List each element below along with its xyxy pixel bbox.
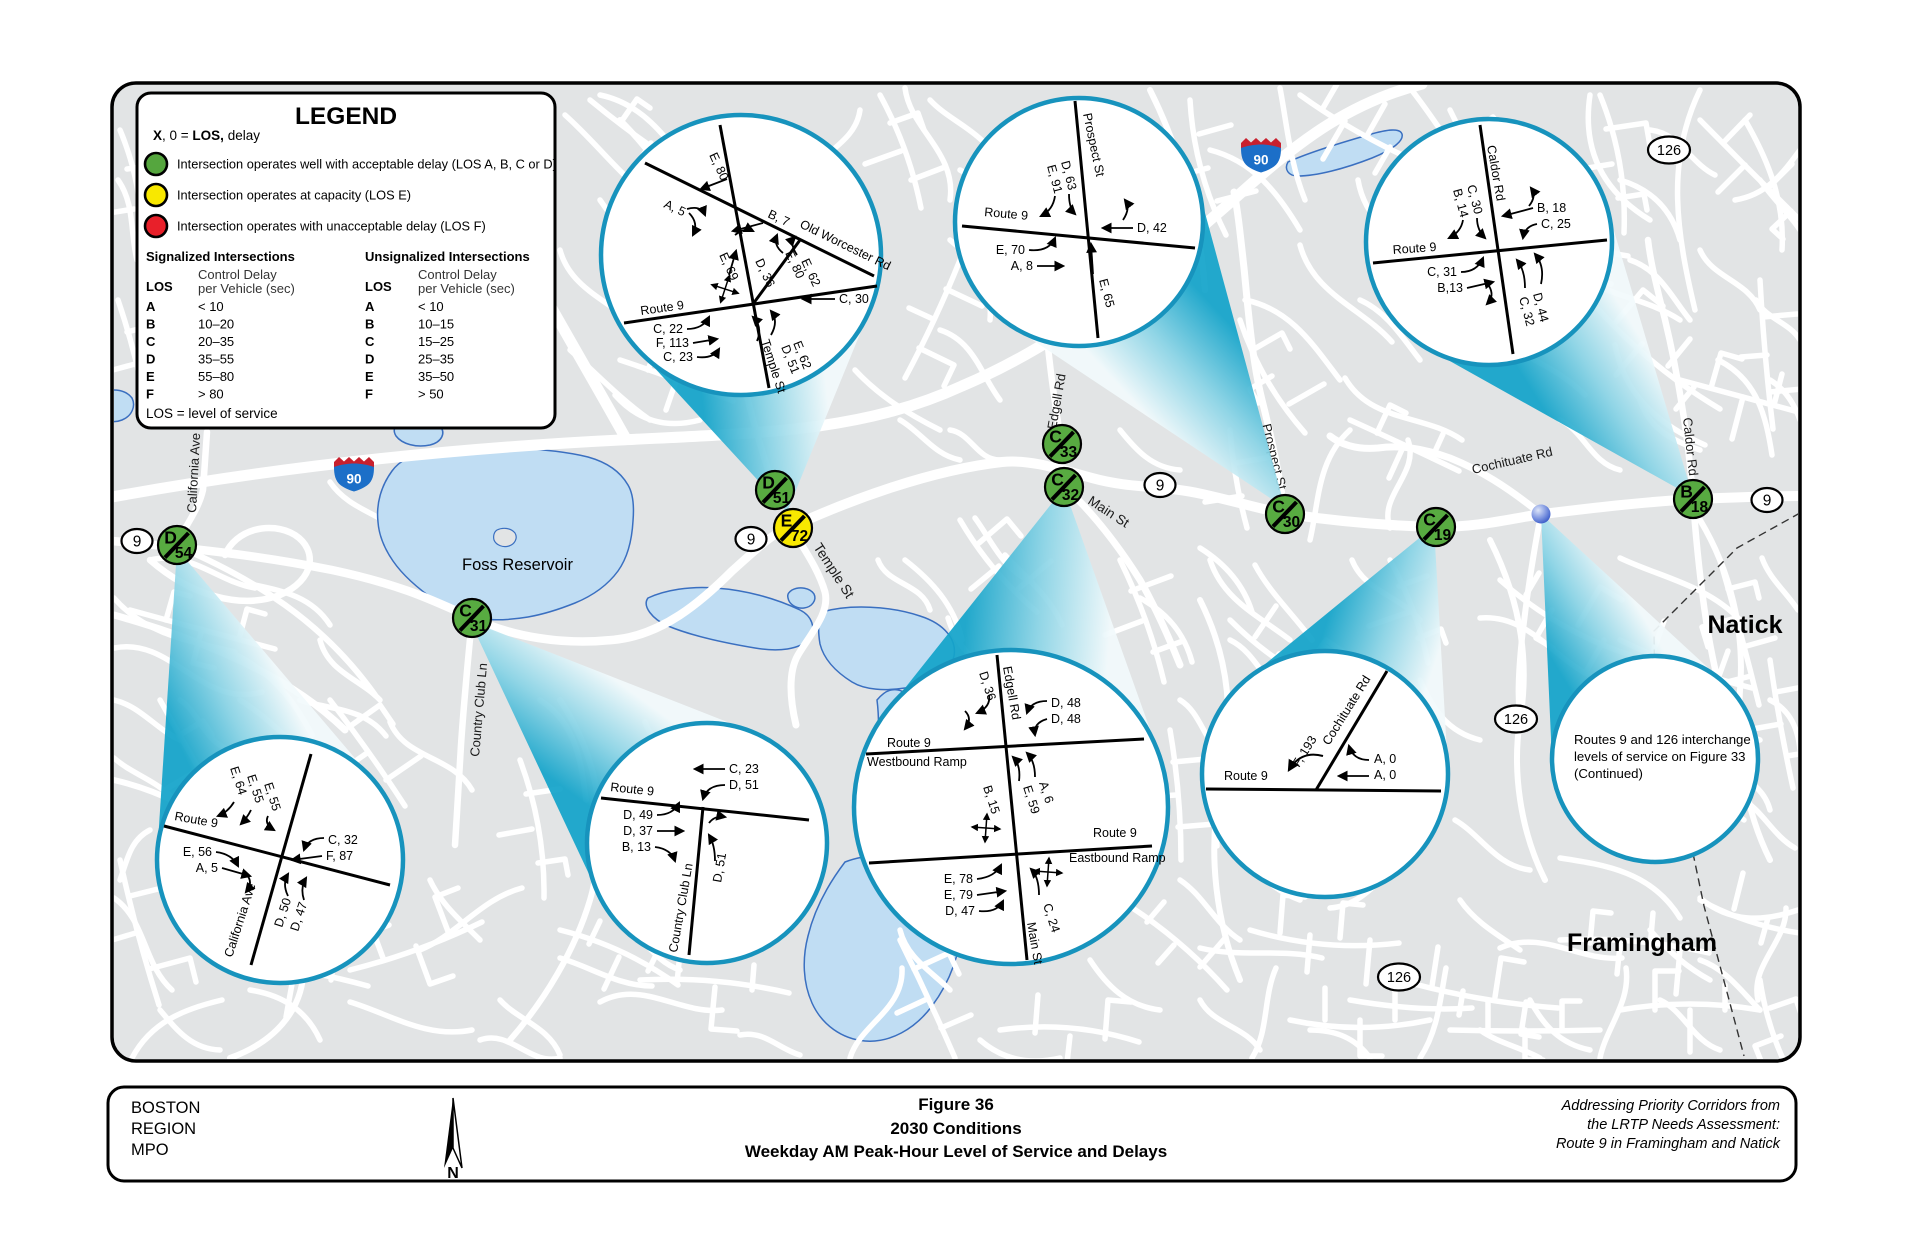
svg-text:10–15: 10–15 [418,317,454,332]
svg-text:E: E [146,369,155,384]
svg-text:D, 51: D, 51 [729,778,759,792]
svg-text:C, 22: C, 22 [653,322,683,336]
svg-text:per Vehicle (sec): per Vehicle (sec) [198,281,295,296]
svg-text:10–20: 10–20 [198,317,234,332]
svg-text:C, 23: C, 23 [729,762,759,776]
svg-text:LOS: LOS [365,279,392,294]
svg-text:F: F [146,387,154,402]
svg-text:C, 32: C, 32 [328,833,358,847]
svg-text:D, 48: D, 48 [1051,696,1081,710]
svg-text:126: 126 [1387,970,1411,986]
svg-text:LOS: LOS [146,279,173,294]
svg-text:33: 33 [1060,444,1078,461]
svg-text:F: F [365,387,373,402]
svg-text:B: B [146,317,155,332]
svg-text:54: 54 [175,545,193,562]
svg-text:Unsignalized Intersections: Unsignalized Intersections [365,249,530,264]
svg-text:BOSTON: BOSTON [131,1099,200,1117]
svg-text:A, 0: A, 0 [1374,768,1396,782]
svg-text:Natick: Natick [1707,611,1782,639]
svg-text:Intersection operates at capac: Intersection operates at capacity (LOS E… [177,188,411,203]
svg-text:20–35: 20–35 [198,334,234,349]
svg-text:D, 48: D, 48 [1051,712,1081,726]
svg-text:C, 31: C, 31 [1427,265,1457,279]
svg-text:per Vehicle (sec): per Vehicle (sec) [418,281,515,296]
svg-text:2030 Conditions: 2030 Conditions [890,1119,1021,1138]
svg-text:Eastbound Ramp: Eastbound Ramp [1069,851,1166,865]
svg-text:B, 13: B, 13 [622,840,651,854]
svg-text:9: 9 [747,532,756,549]
svg-text:C: C [365,334,375,349]
svg-text:Routes 9 and 126 interchange: Routes 9 and 126 interchange [1574,732,1751,747]
svg-text:Figure 36: Figure 36 [918,1095,994,1114]
svg-text:35–55: 35–55 [198,352,234,367]
svg-text:D, 37: D, 37 [623,824,653,838]
svg-text:Framingham: Framingham [1567,929,1717,957]
svg-text:D, 47: D, 47 [945,904,975,918]
svg-text:E: E [365,369,374,384]
svg-text:< 10: < 10 [418,299,444,314]
svg-text:Route 9: Route 9 [887,736,931,750]
svg-text:Addressing Priority Corridors: Addressing Priority Corridors from [1561,1098,1780,1114]
svg-text:A, 0: A, 0 [1374,752,1396,766]
svg-text:Weekday AM Peak-Hour Level of: Weekday AM Peak-Hour Level of Service an… [745,1142,1167,1161]
svg-text:55–80: 55–80 [198,369,234,384]
svg-text:15–25: 15–25 [418,334,454,349]
svg-text:E, 78: E, 78 [944,872,973,886]
svg-text:< 10: < 10 [198,299,224,314]
svg-text:B, 18: B, 18 [1537,201,1566,215]
svg-text:E, 79: E, 79 [944,888,973,902]
svg-text:E, 70: E, 70 [996,243,1025,257]
svg-text:18: 18 [1691,499,1709,516]
svg-text:> 80: > 80 [198,387,224,402]
svg-text:72: 72 [791,528,808,545]
svg-text:51: 51 [773,490,791,507]
svg-text:Control Delay: Control Delay [418,267,497,282]
svg-text:D: D [365,352,374,367]
svg-text:E, 56: E, 56 [183,845,212,859]
svg-text:32: 32 [1062,487,1079,504]
svg-text:A: A [146,299,156,314]
svg-text:> 50: > 50 [418,387,444,402]
svg-text:9: 9 [133,534,142,551]
svg-text:Control Delay: Control Delay [198,267,277,282]
svg-text:Foss Reservoir: Foss Reservoir [462,556,573,574]
svg-text:C, 30: C, 30 [839,292,869,306]
svg-text:C, 23: C, 23 [663,350,693,364]
svg-text:A, 5: A, 5 [196,861,218,875]
svg-text:B,13: B,13 [1437,281,1463,295]
svg-text:MPO: MPO [131,1141,169,1159]
svg-text:the LRTP Needs Assessment:: the LRTP Needs Assessment: [1587,1117,1780,1133]
svg-text:LEGEND: LEGEND [295,103,397,130]
svg-text:D: D [146,352,155,367]
svg-text:F, 87: F, 87 [326,849,353,863]
svg-text:30: 30 [1283,514,1300,531]
svg-text:9: 9 [1763,493,1772,510]
svg-text:C, 25: C, 25 [1541,217,1571,231]
svg-text:Westbound Ramp: Westbound Ramp [867,755,967,769]
svg-text:9: 9 [1156,478,1165,495]
svg-text:19: 19 [1434,527,1452,544]
svg-text:Route 9: Route 9 [1093,826,1137,840]
svg-text:Route 9 in Framingham and Nati: Route 9 in Framingham and Natick [1556,1136,1781,1152]
svg-text:levels of service on Figure 33: levels of service on Figure 33 [1574,749,1746,764]
svg-text:A, 8: A, 8 [1011,259,1033,273]
svg-text:90: 90 [346,472,361,487]
svg-text:Route 9: Route 9 [1224,769,1268,783]
svg-text:REGION: REGION [131,1120,196,1138]
svg-text:F, 113: F, 113 [656,336,689,350]
svg-text:X, 0 = LOS, delay: X, 0 = LOS, delay [153,128,260,143]
svg-text:25–35: 25–35 [418,352,454,367]
svg-text:Intersection operates with una: Intersection operates with unacceptable … [177,219,486,234]
svg-text:C: C [146,334,156,349]
svg-text:126: 126 [1657,143,1681,159]
svg-text:LOS = level of service: LOS = level of service [146,406,278,421]
svg-text:126: 126 [1504,712,1528,728]
svg-text:90: 90 [1253,153,1268,168]
svg-text:N: N [447,1165,459,1182]
svg-text:Intersection operates well wit: Intersection operates well with acceptab… [177,157,557,172]
svg-text:B: B [365,317,374,332]
svg-text:31: 31 [470,618,488,635]
svg-text:Signalized Intersections: Signalized Intersections [146,249,295,264]
svg-text:D, 49: D, 49 [623,808,653,822]
svg-text:35–50: 35–50 [418,369,454,384]
svg-text:D, 42: D, 42 [1137,221,1167,235]
svg-text:A: A [365,299,375,314]
svg-text:(Continued): (Continued) [1574,766,1643,781]
